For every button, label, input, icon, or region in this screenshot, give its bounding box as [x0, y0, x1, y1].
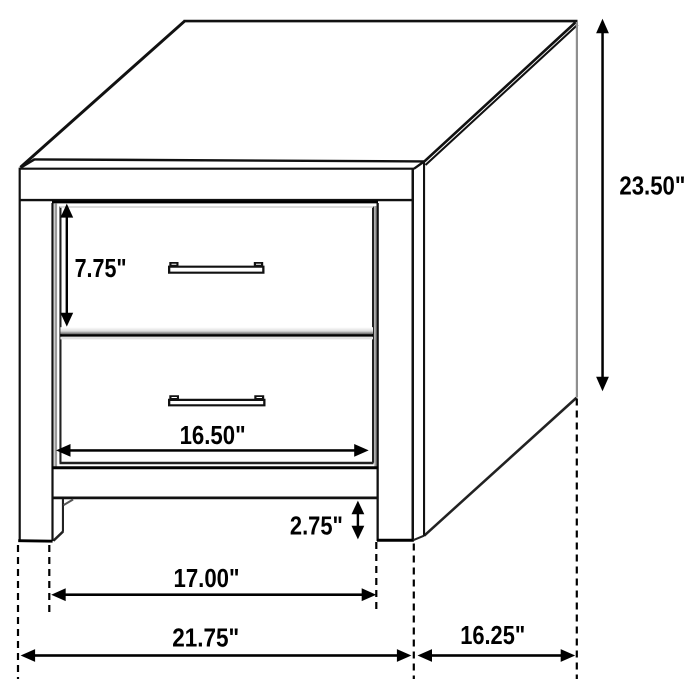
svg-text:16.50": 16.50" [180, 420, 246, 450]
svg-text:17.00": 17.00" [174, 563, 240, 593]
svg-text:23.50": 23.50" [619, 171, 685, 201]
svg-text:21.75": 21.75" [172, 622, 239, 652]
svg-text:7.75": 7.75" [75, 253, 127, 283]
svg-text:16.25": 16.25" [460, 620, 525, 650]
svg-text:2.75": 2.75" [290, 510, 343, 540]
